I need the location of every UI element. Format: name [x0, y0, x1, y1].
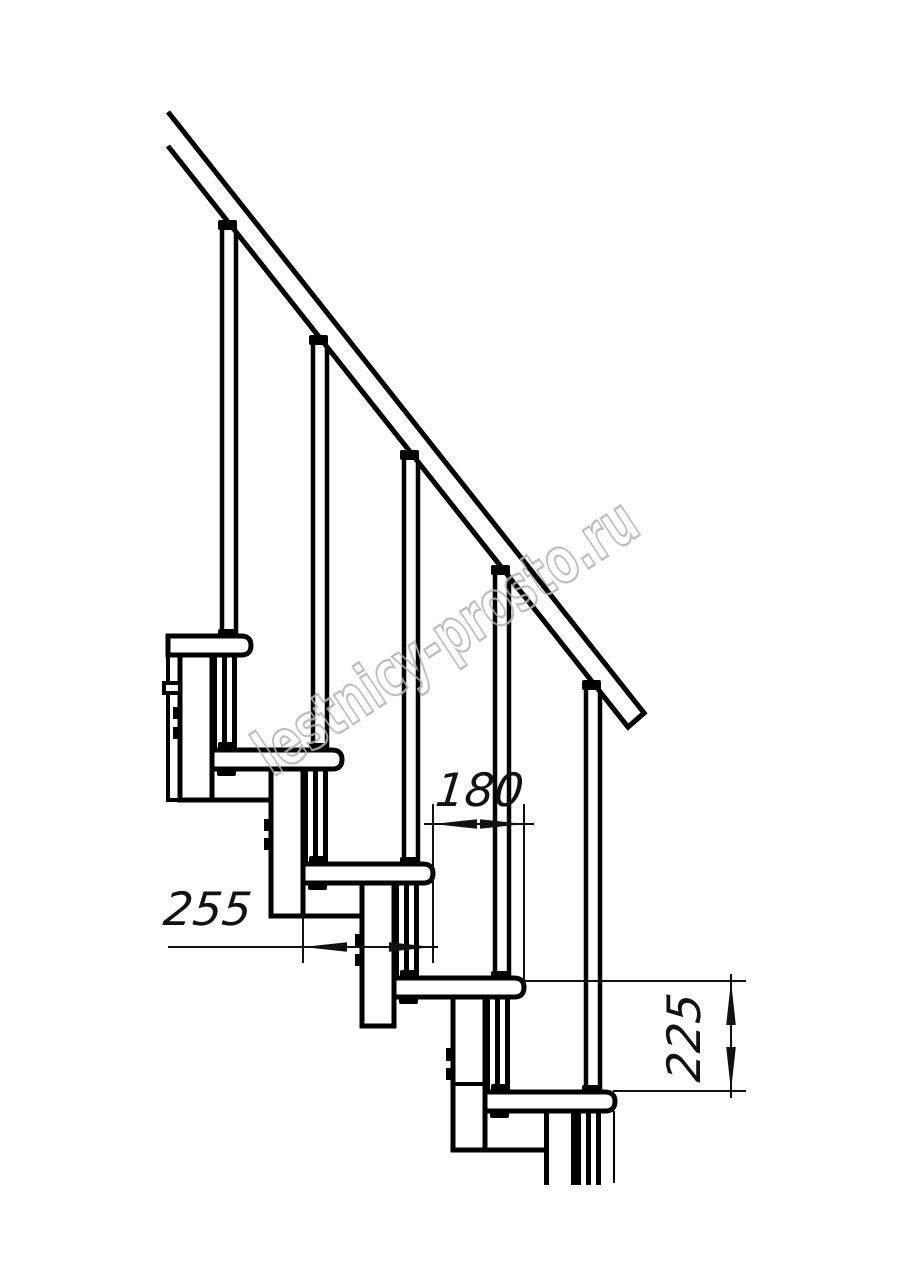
baluster: [222, 223, 236, 638]
bolt: [173, 727, 182, 739]
bolt: [446, 1068, 455, 1080]
bolt: [355, 954, 364, 966]
staircase-technical-drawing: 180 255 225 lestnicy-prosto.ru: [0, 0, 914, 1280]
dimension-rise-225: [520, 974, 746, 1098]
bolt: [264, 838, 273, 850]
baluster-cap: [582, 680, 601, 690]
tread-4: [394, 978, 524, 997]
bolt: [355, 934, 364, 946]
dimension-label-180: 180: [433, 763, 526, 817]
bolt: [264, 819, 273, 831]
dimension-label-225: 225: [657, 991, 711, 1084]
baluster-cap: [309, 335, 328, 345]
dimension-run-180: [424, 804, 534, 986]
bracket-tab: [164, 683, 180, 693]
tread-3: [303, 864, 433, 883]
dimension-label-255: 255: [161, 882, 254, 936]
bolt: [173, 707, 182, 719]
bolt: [446, 1048, 455, 1061]
tread-5: [485, 1092, 615, 1111]
baluster: [586, 683, 600, 1094]
drawing-page: 180 255 225 lestnicy-prosto.ru: [0, 0, 914, 1280]
tread-1: [168, 636, 251, 655]
baluster-cap: [218, 220, 237, 230]
baluster-cap: [400, 450, 419, 460]
